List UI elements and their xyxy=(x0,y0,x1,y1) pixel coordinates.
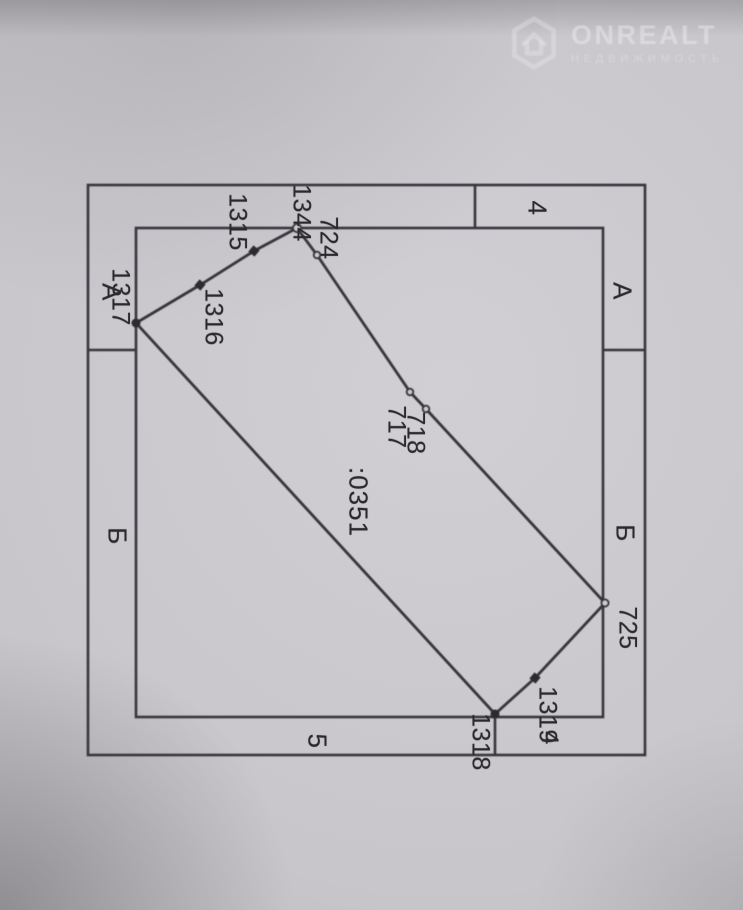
point-marker-717 xyxy=(407,389,413,395)
section-label-top-4: 4 xyxy=(522,201,553,216)
section-label-right-b: Б xyxy=(610,524,641,542)
section-label-left-a: А xyxy=(96,283,127,301)
plan-drawing xyxy=(0,0,743,910)
point-label-725: 725 xyxy=(613,606,642,649)
scanned-cadastral-plan: ONREALT НЕДВИЖИМОСТЬ xyxy=(0,0,743,910)
point-label-724: 724 xyxy=(314,216,343,259)
point-label-overlap-mark: 4 xyxy=(535,731,563,745)
point-label-1316: 1316 xyxy=(199,288,228,346)
section-label-right-a: А xyxy=(607,282,638,300)
point-marker-725 xyxy=(602,600,609,607)
section-label-bottom-5: 5 xyxy=(302,734,333,749)
parcel-number-label: :0351 xyxy=(343,467,374,537)
point-label-1318: 1318 xyxy=(466,713,495,771)
point-label-718: 718 xyxy=(401,411,430,454)
section-label-left-b: Б xyxy=(102,527,133,545)
point-label-1344: 1344 xyxy=(287,184,316,242)
point-label-1315: 1315 xyxy=(223,193,252,251)
